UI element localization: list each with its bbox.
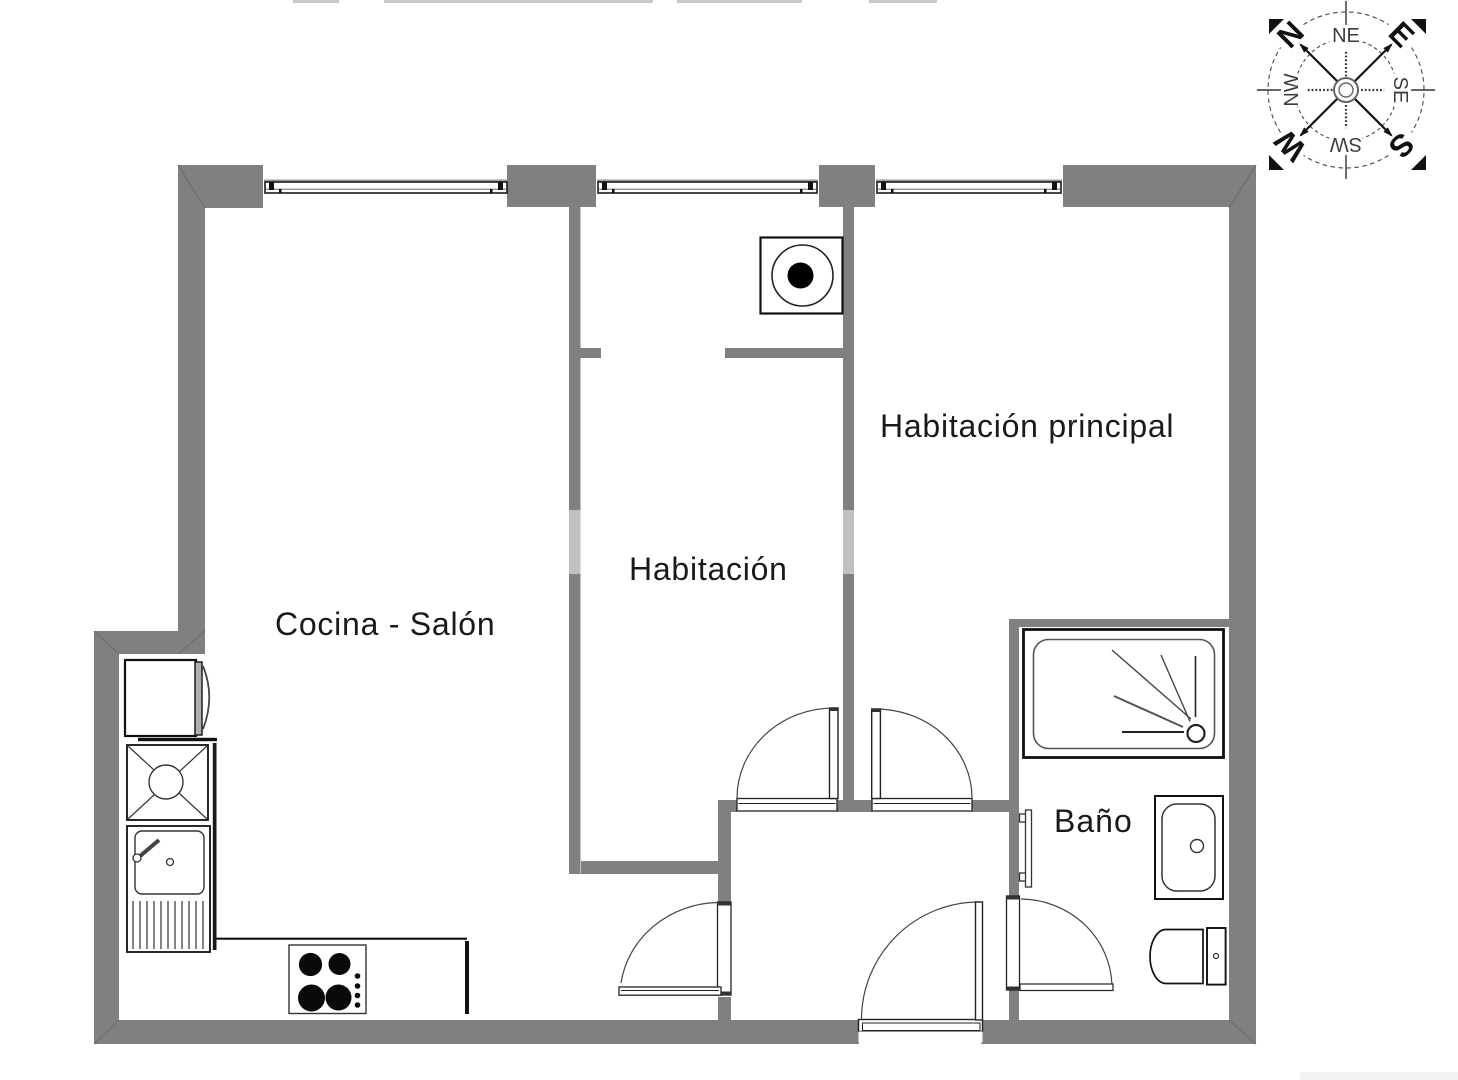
svg-text:Habitación: Habitación (629, 551, 788, 587)
svg-text:Habitación principal: Habitación principal (880, 408, 1174, 444)
svg-text:SW: SW (1330, 133, 1362, 155)
svg-text:SE: SE (1389, 77, 1411, 104)
svg-text:NE: NE (1332, 25, 1360, 47)
svg-text:Cocina - Salón: Cocina - Salón (275, 606, 495, 642)
svg-text:NW: NW (1281, 73, 1303, 106)
svg-text:Baño: Baño (1054, 803, 1133, 839)
